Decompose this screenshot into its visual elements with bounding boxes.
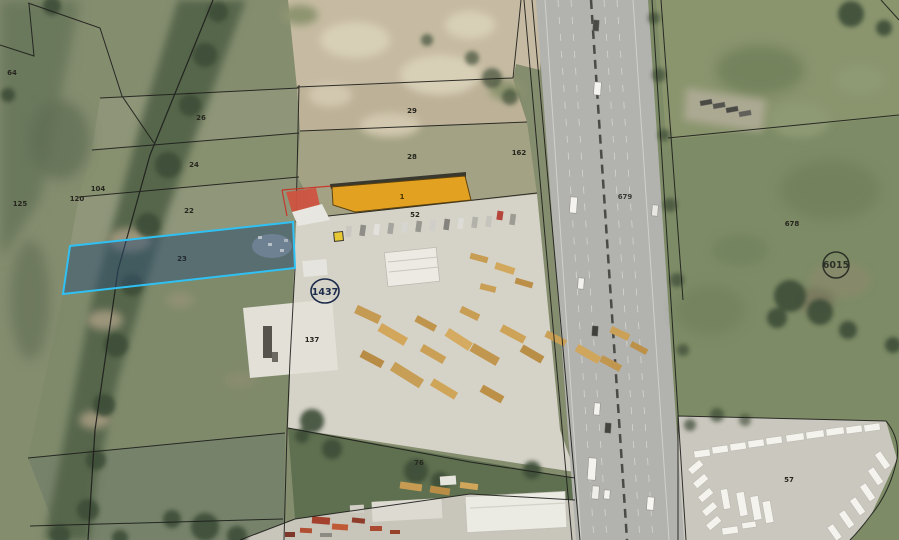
parcel-label-29: 29 (407, 107, 417, 115)
rubble-dot (280, 249, 284, 252)
rubble-dot (284, 239, 288, 242)
parcel-label-76: 76 (414, 459, 424, 467)
parcel-label-678: 678 (785, 220, 800, 228)
parcel-label-679: 679 (618, 193, 633, 201)
parcel-label-26: 26 (196, 114, 206, 122)
cadastral-number-1437: 1437 (312, 287, 338, 298)
parcel-label-137: 137 (305, 336, 320, 344)
parcel-label-22: 22 (184, 207, 194, 215)
cadastral-map[interactable]: 1 1437 6015 64 26 24 104 120 125 22 23 2… (0, 0, 899, 540)
yellow-marker[interactable] (334, 231, 344, 241)
satellite-map-viewport[interactable]: 1 1437 6015 64 26 24 104 120 125 22 23 2… (0, 0, 899, 540)
parcel-label-125: 125 (13, 200, 28, 208)
parcel-label-28: 28 (407, 153, 417, 161)
building-number-label: 1 (400, 193, 405, 201)
rubble-dot (258, 236, 262, 239)
parcel-label-64: 64 (7, 69, 17, 77)
parcel-label-24: 24 (189, 161, 199, 169)
rubble-dot (268, 243, 272, 246)
cadastral-number-6015: 6015 (823, 260, 849, 271)
parcel-label-52: 52 (410, 211, 420, 219)
parcel-label-104: 104 (91, 185, 106, 193)
parcel-label-162: 162 (512, 149, 527, 157)
parcel-label-120: 120 (70, 195, 85, 203)
parcel-label-57: 57 (784, 476, 794, 484)
parcel-label-23: 23 (177, 255, 187, 263)
warehouse-building (384, 247, 439, 286)
